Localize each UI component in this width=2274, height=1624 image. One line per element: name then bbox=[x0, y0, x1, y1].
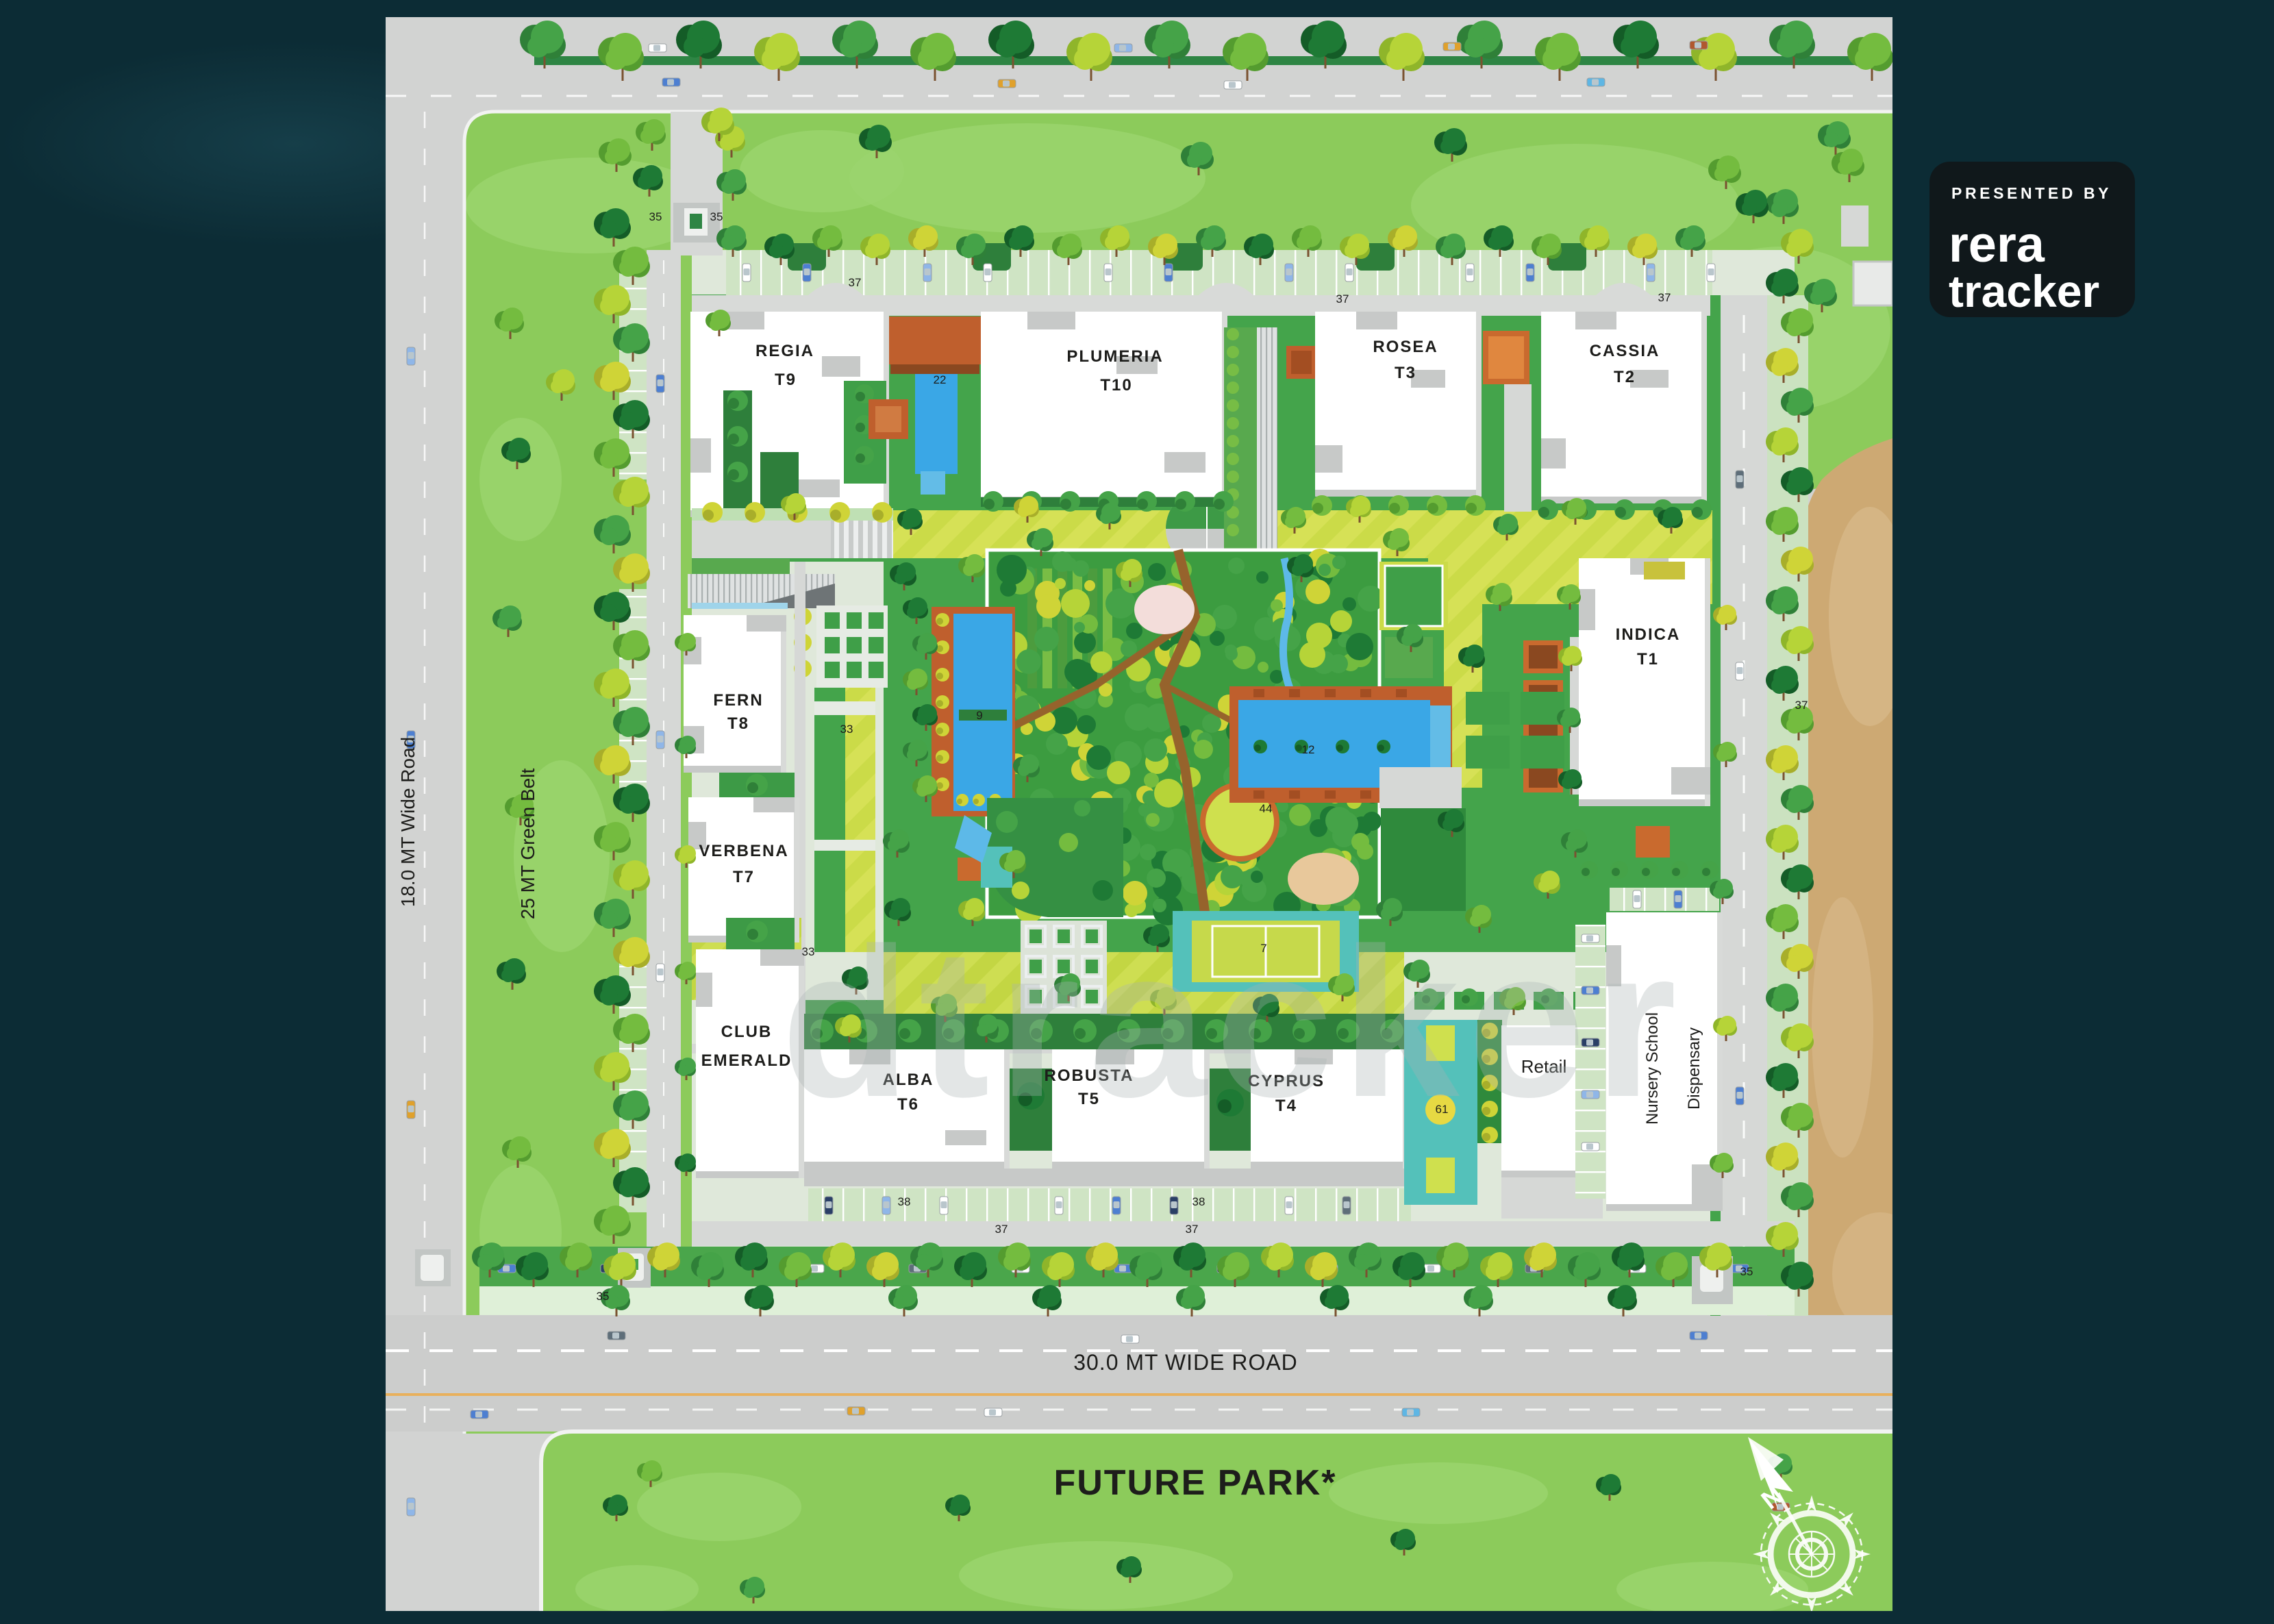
svg-text:T1: T1 bbox=[1637, 650, 1659, 669]
svg-text:22: 22 bbox=[934, 373, 947, 386]
svg-text:35: 35 bbox=[649, 210, 662, 223]
svg-text:ROSEA: ROSEA bbox=[1373, 338, 1438, 356]
svg-text:FUTURE PARK*: FUTURE PARK* bbox=[1053, 1463, 1336, 1503]
svg-text:T9: T9 bbox=[775, 371, 797, 389]
svg-text:44: 44 bbox=[1260, 802, 1273, 815]
svg-text:FERN: FERN bbox=[713, 691, 763, 710]
svg-text:37: 37 bbox=[1336, 292, 1349, 305]
svg-text:PLUMERIA: PLUMERIA bbox=[1066, 347, 1163, 366]
svg-text:tracker: tracker bbox=[1949, 266, 2099, 316]
svg-text:INDICA: INDICA bbox=[1616, 625, 1681, 644]
svg-text:VERBENA: VERBENA bbox=[699, 842, 788, 860]
svg-text:CLUB: CLUB bbox=[721, 1023, 773, 1041]
svg-text:T8: T8 bbox=[727, 714, 749, 733]
svg-text:25 MT Green Belt: 25 MT Green Belt bbox=[517, 769, 538, 920]
svg-text:T10: T10 bbox=[1100, 376, 1132, 395]
svg-text:T7: T7 bbox=[733, 868, 755, 886]
svg-text:EMERALD: EMERALD bbox=[701, 1051, 792, 1070]
svg-text:18.0 MT Wide Road: 18.0 MT Wide Road bbox=[397, 737, 418, 908]
svg-text:PRESENTED BY: PRESENTED BY bbox=[1951, 184, 2112, 202]
svg-text:35: 35 bbox=[597, 1290, 610, 1303]
svg-text:37: 37 bbox=[1658, 291, 1671, 304]
svg-text:37: 37 bbox=[849, 276, 862, 289]
svg-text:dtracker: dtracker bbox=[781, 903, 1685, 1141]
svg-text:35: 35 bbox=[1740, 1265, 1753, 1278]
svg-text:37: 37 bbox=[1186, 1223, 1199, 1236]
svg-text:35: 35 bbox=[710, 210, 723, 223]
svg-text:CASSIA: CASSIA bbox=[1590, 342, 1660, 360]
svg-text:Dispensary: Dispensary bbox=[1685, 1027, 1703, 1110]
svg-text:REGIA: REGIA bbox=[755, 342, 814, 360]
svg-text:37: 37 bbox=[995, 1223, 1008, 1236]
svg-text:37: 37 bbox=[1795, 699, 1808, 712]
svg-text:T3: T3 bbox=[1395, 364, 1416, 382]
svg-text:30.0 MT WIDE ROAD: 30.0 MT WIDE ROAD bbox=[1073, 1350, 1298, 1375]
svg-text:33: 33 bbox=[840, 723, 853, 736]
svg-text:rera: rera bbox=[1949, 216, 2045, 273]
svg-text:38: 38 bbox=[898, 1195, 911, 1208]
svg-text:12: 12 bbox=[1302, 743, 1315, 756]
svg-text:T2: T2 bbox=[1614, 368, 1636, 386]
svg-text:9: 9 bbox=[976, 709, 982, 722]
svg-text:38: 38 bbox=[1192, 1195, 1205, 1208]
